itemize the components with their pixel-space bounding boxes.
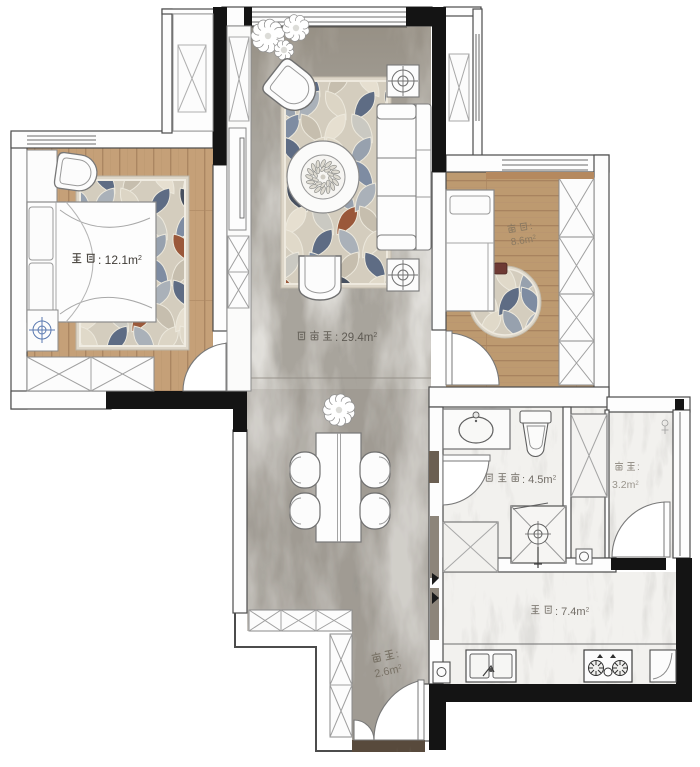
svg-text:: 7.4m2: : 7.4m2	[555, 606, 590, 618]
svg-text:: 29.4m2: : 29.4m2	[335, 332, 377, 344]
svg-text:: 4.5m2: : 4.5m2	[522, 474, 557, 486]
svg-text:: 12.1m2: : 12.1m2	[98, 253, 142, 267]
svg-text:3.2m2: 3.2m2	[612, 479, 639, 491]
svg-text::: :	[637, 462, 640, 473]
